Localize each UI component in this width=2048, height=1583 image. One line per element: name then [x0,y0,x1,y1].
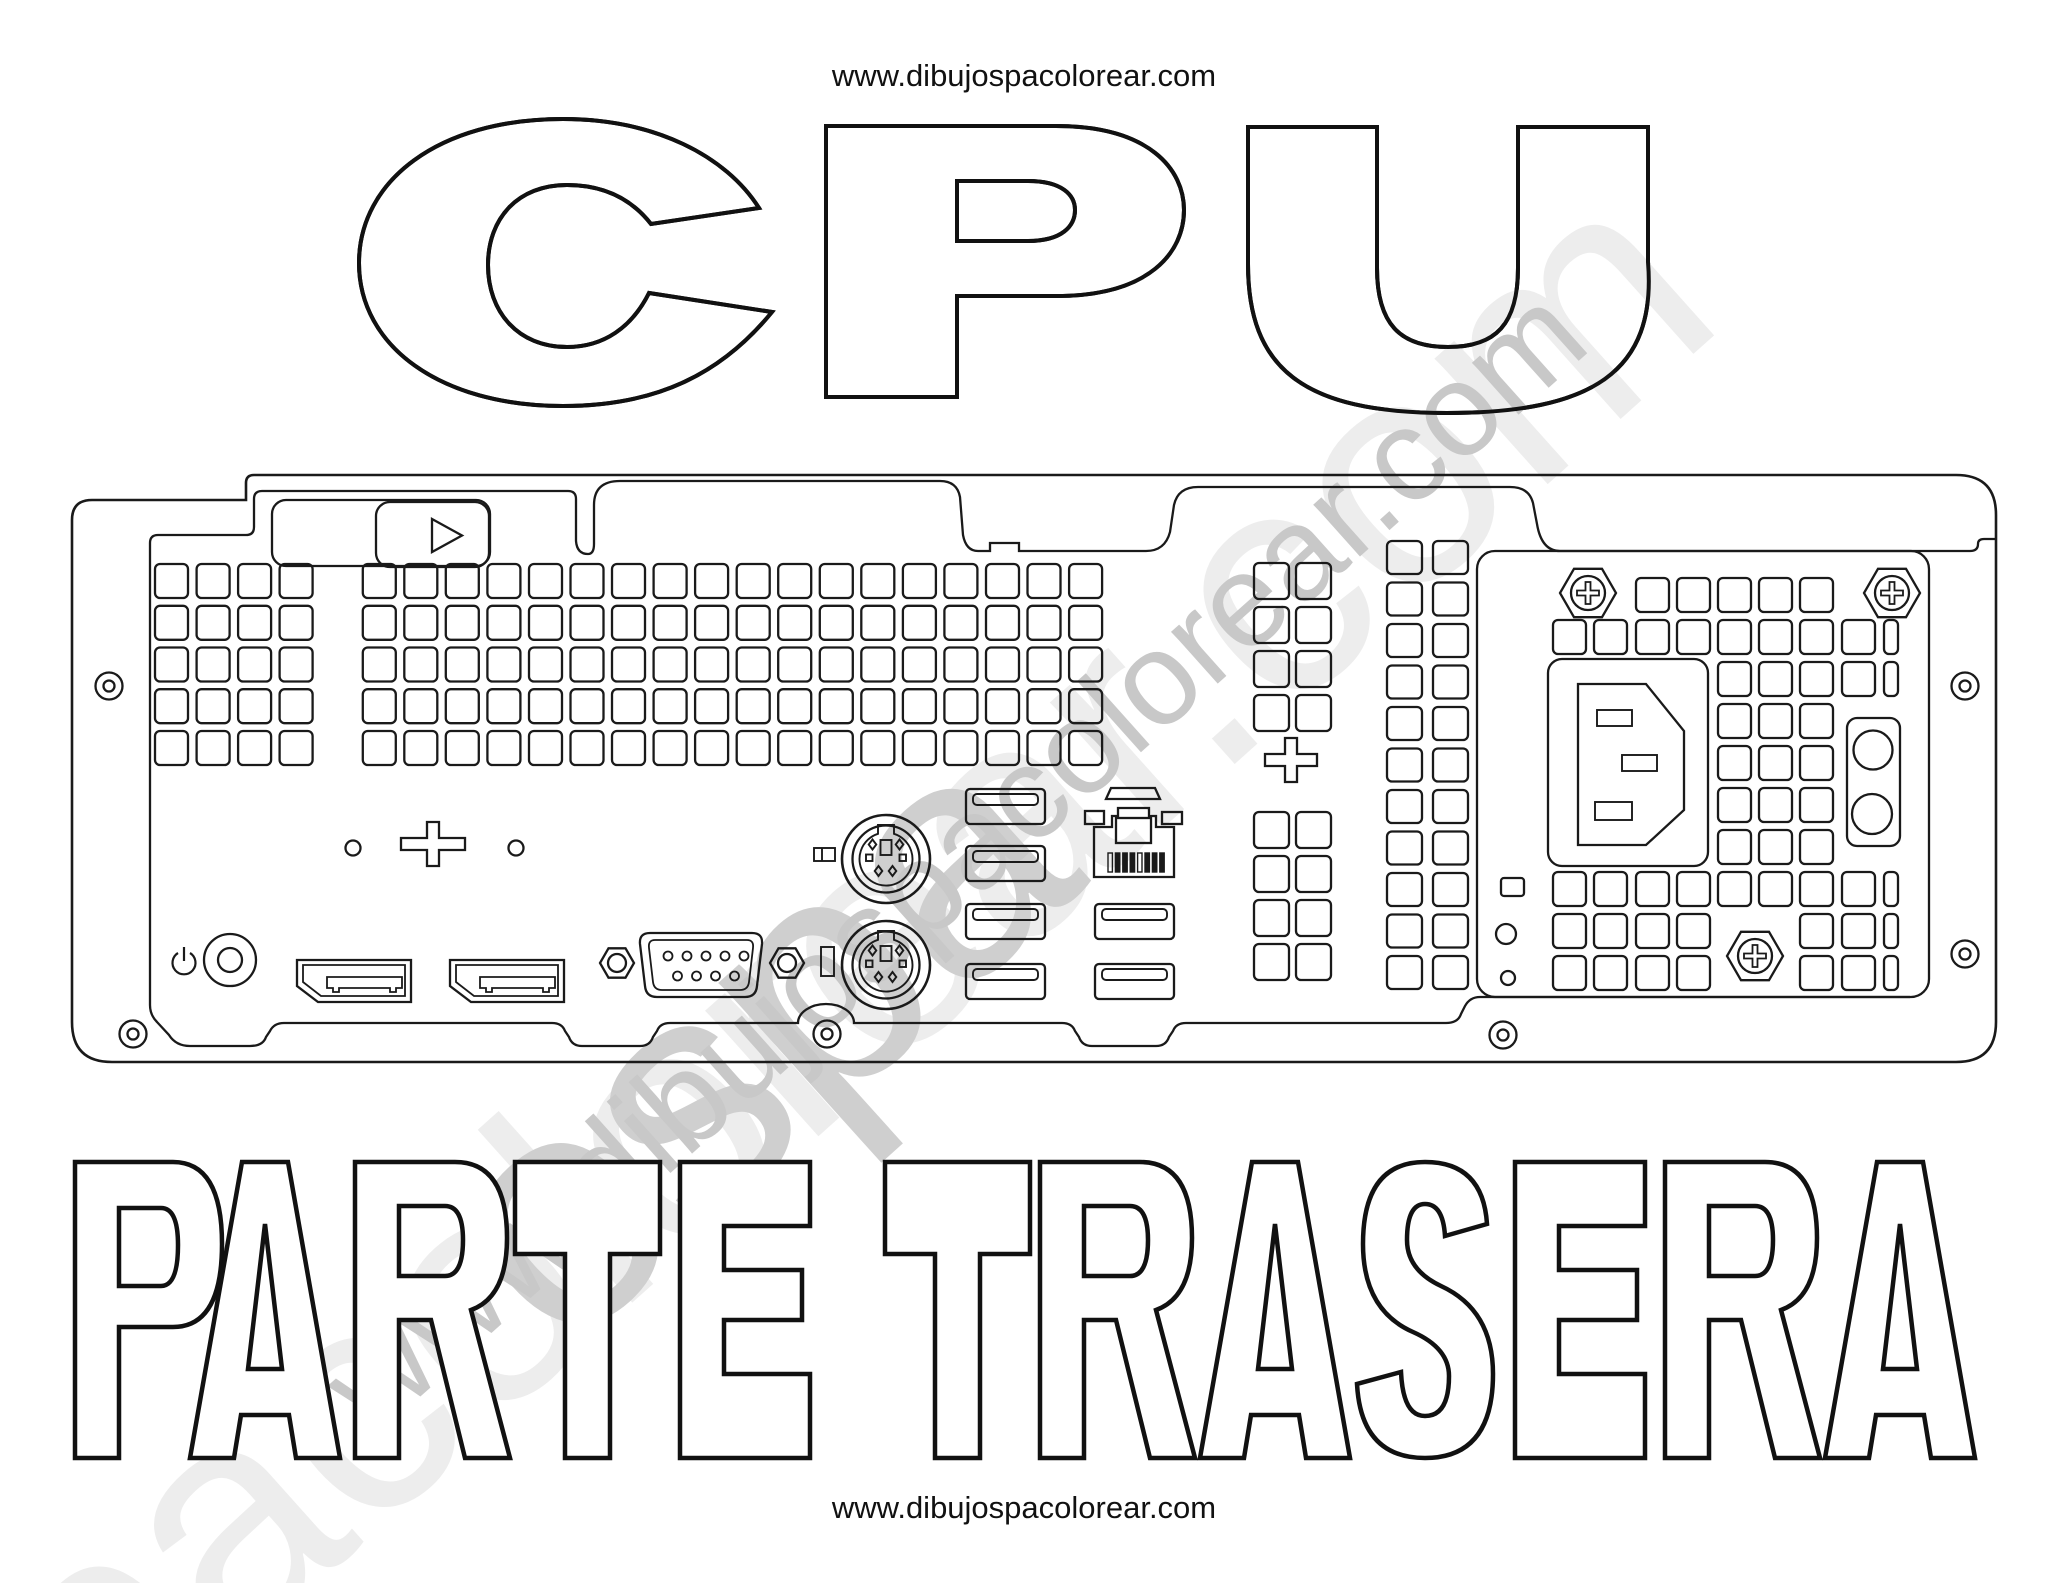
svg-text:www.dibujospacolorear.com: www.dibujospacolorear.com [831,1490,1216,1525]
svg-text:www.dibujospacolorear.com: www.dibujospacolorear.com [831,58,1216,93]
